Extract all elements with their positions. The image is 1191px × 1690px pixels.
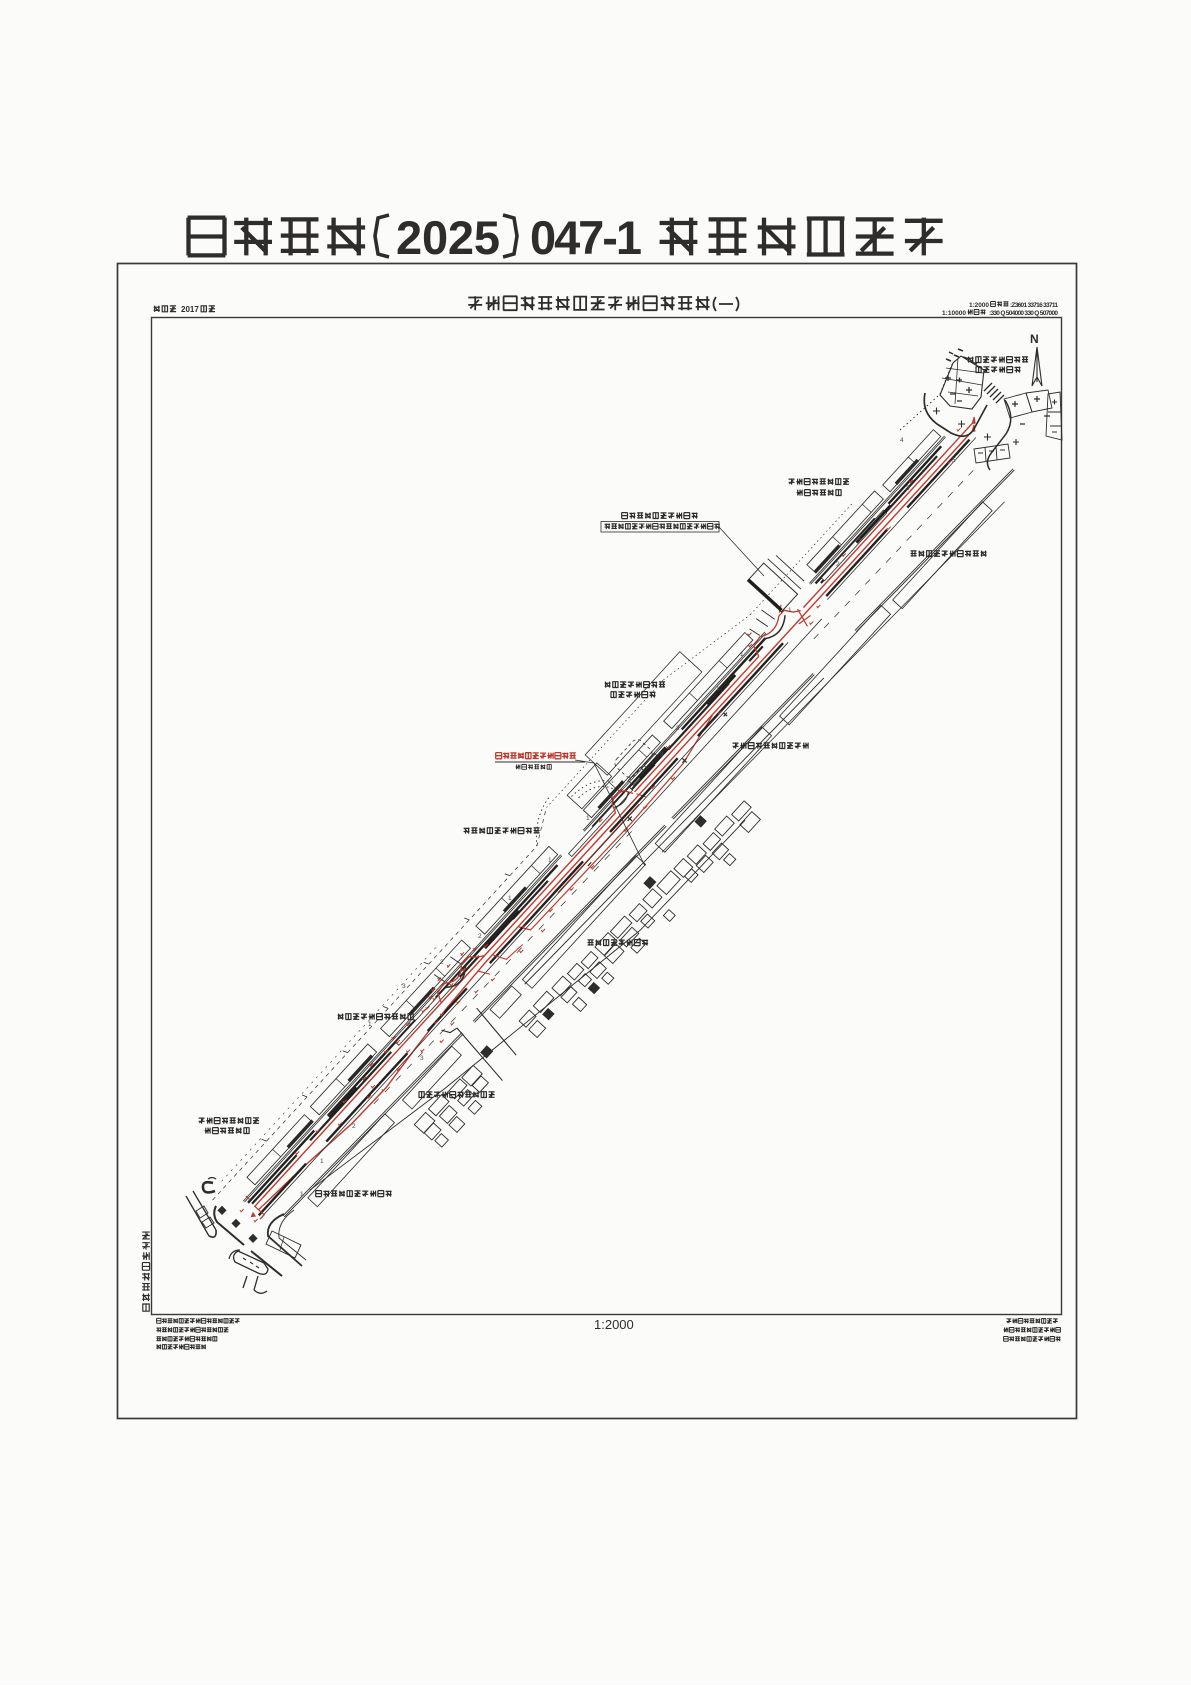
- svg-text:2: 2: [836, 561, 840, 568]
- svg-text:2: 2: [478, 933, 482, 940]
- svg-text:1:2000: 1:2000: [969, 302, 989, 309]
- svg-text::Z3601 33716 33711: :Z3601 33716 33711: [1010, 302, 1058, 309]
- svg-text:1: 1: [628, 775, 632, 782]
- svg-text:1: 1: [716, 685, 720, 692]
- svg-text:8: 8: [660, 751, 664, 758]
- svg-text:1: 1: [586, 815, 590, 822]
- svg-text:2: 2: [676, 725, 680, 732]
- svg-text:3: 3: [402, 983, 406, 990]
- svg-text:1: 1: [548, 857, 552, 864]
- svg-text:2025: 2025: [396, 211, 500, 264]
- svg-text:1: 1: [788, 607, 792, 614]
- svg-text:N: N: [1030, 332, 1039, 346]
- svg-text:4: 4: [900, 437, 904, 444]
- svg-text:5: 5: [952, 457, 956, 464]
- svg-text:1: 1: [368, 1021, 372, 1028]
- svg-text:1: 1: [740, 651, 744, 658]
- svg-text:2: 2: [352, 1123, 356, 1130]
- svg-text:1:10000: 1:10000: [942, 310, 966, 317]
- svg-text:1: 1: [320, 1158, 324, 1165]
- svg-text:1: 1: [508, 895, 512, 902]
- svg-text:1: 1: [300, 1191, 304, 1198]
- svg-text::330 Q 504000 330 Q 507000: :330 Q 504000 330 Q 507000: [989, 310, 1058, 317]
- svg-text:2017: 2017: [181, 305, 199, 314]
- svg-text:3: 3: [420, 1055, 424, 1062]
- svg-text:2: 2: [440, 959, 444, 966]
- svg-text:1: 1: [858, 535, 862, 542]
- svg-text:3: 3: [906, 485, 910, 492]
- svg-text:1:2000: 1:2000: [594, 1317, 634, 1332]
- svg-text:047-1: 047-1: [530, 211, 642, 264]
